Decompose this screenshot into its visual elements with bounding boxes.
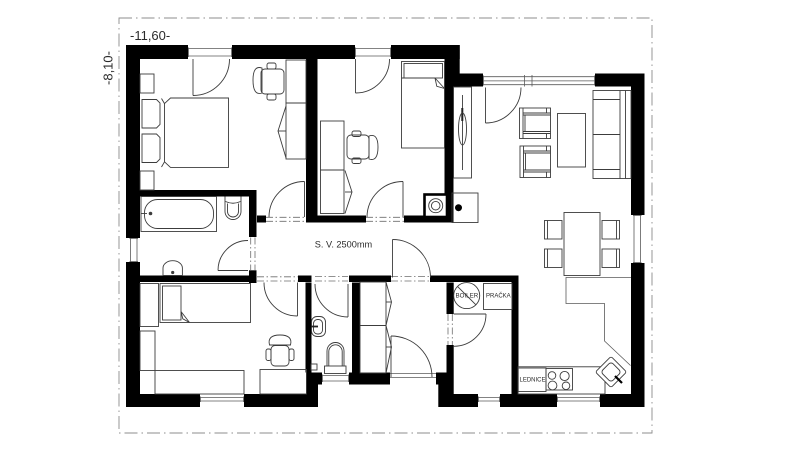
svg-text:BOILER: BOILER [456,293,479,300]
svg-text:-8,10-: -8,10- [100,51,115,85]
svg-text:LEDNICE: LEDNICE [520,378,546,384]
svg-text:S. V. 2500mm: S. V. 2500mm [315,239,373,249]
svg-text:PRAČKA: PRAČKA [486,293,511,300]
svg-text:-11,60-: -11,60- [130,28,170,43]
